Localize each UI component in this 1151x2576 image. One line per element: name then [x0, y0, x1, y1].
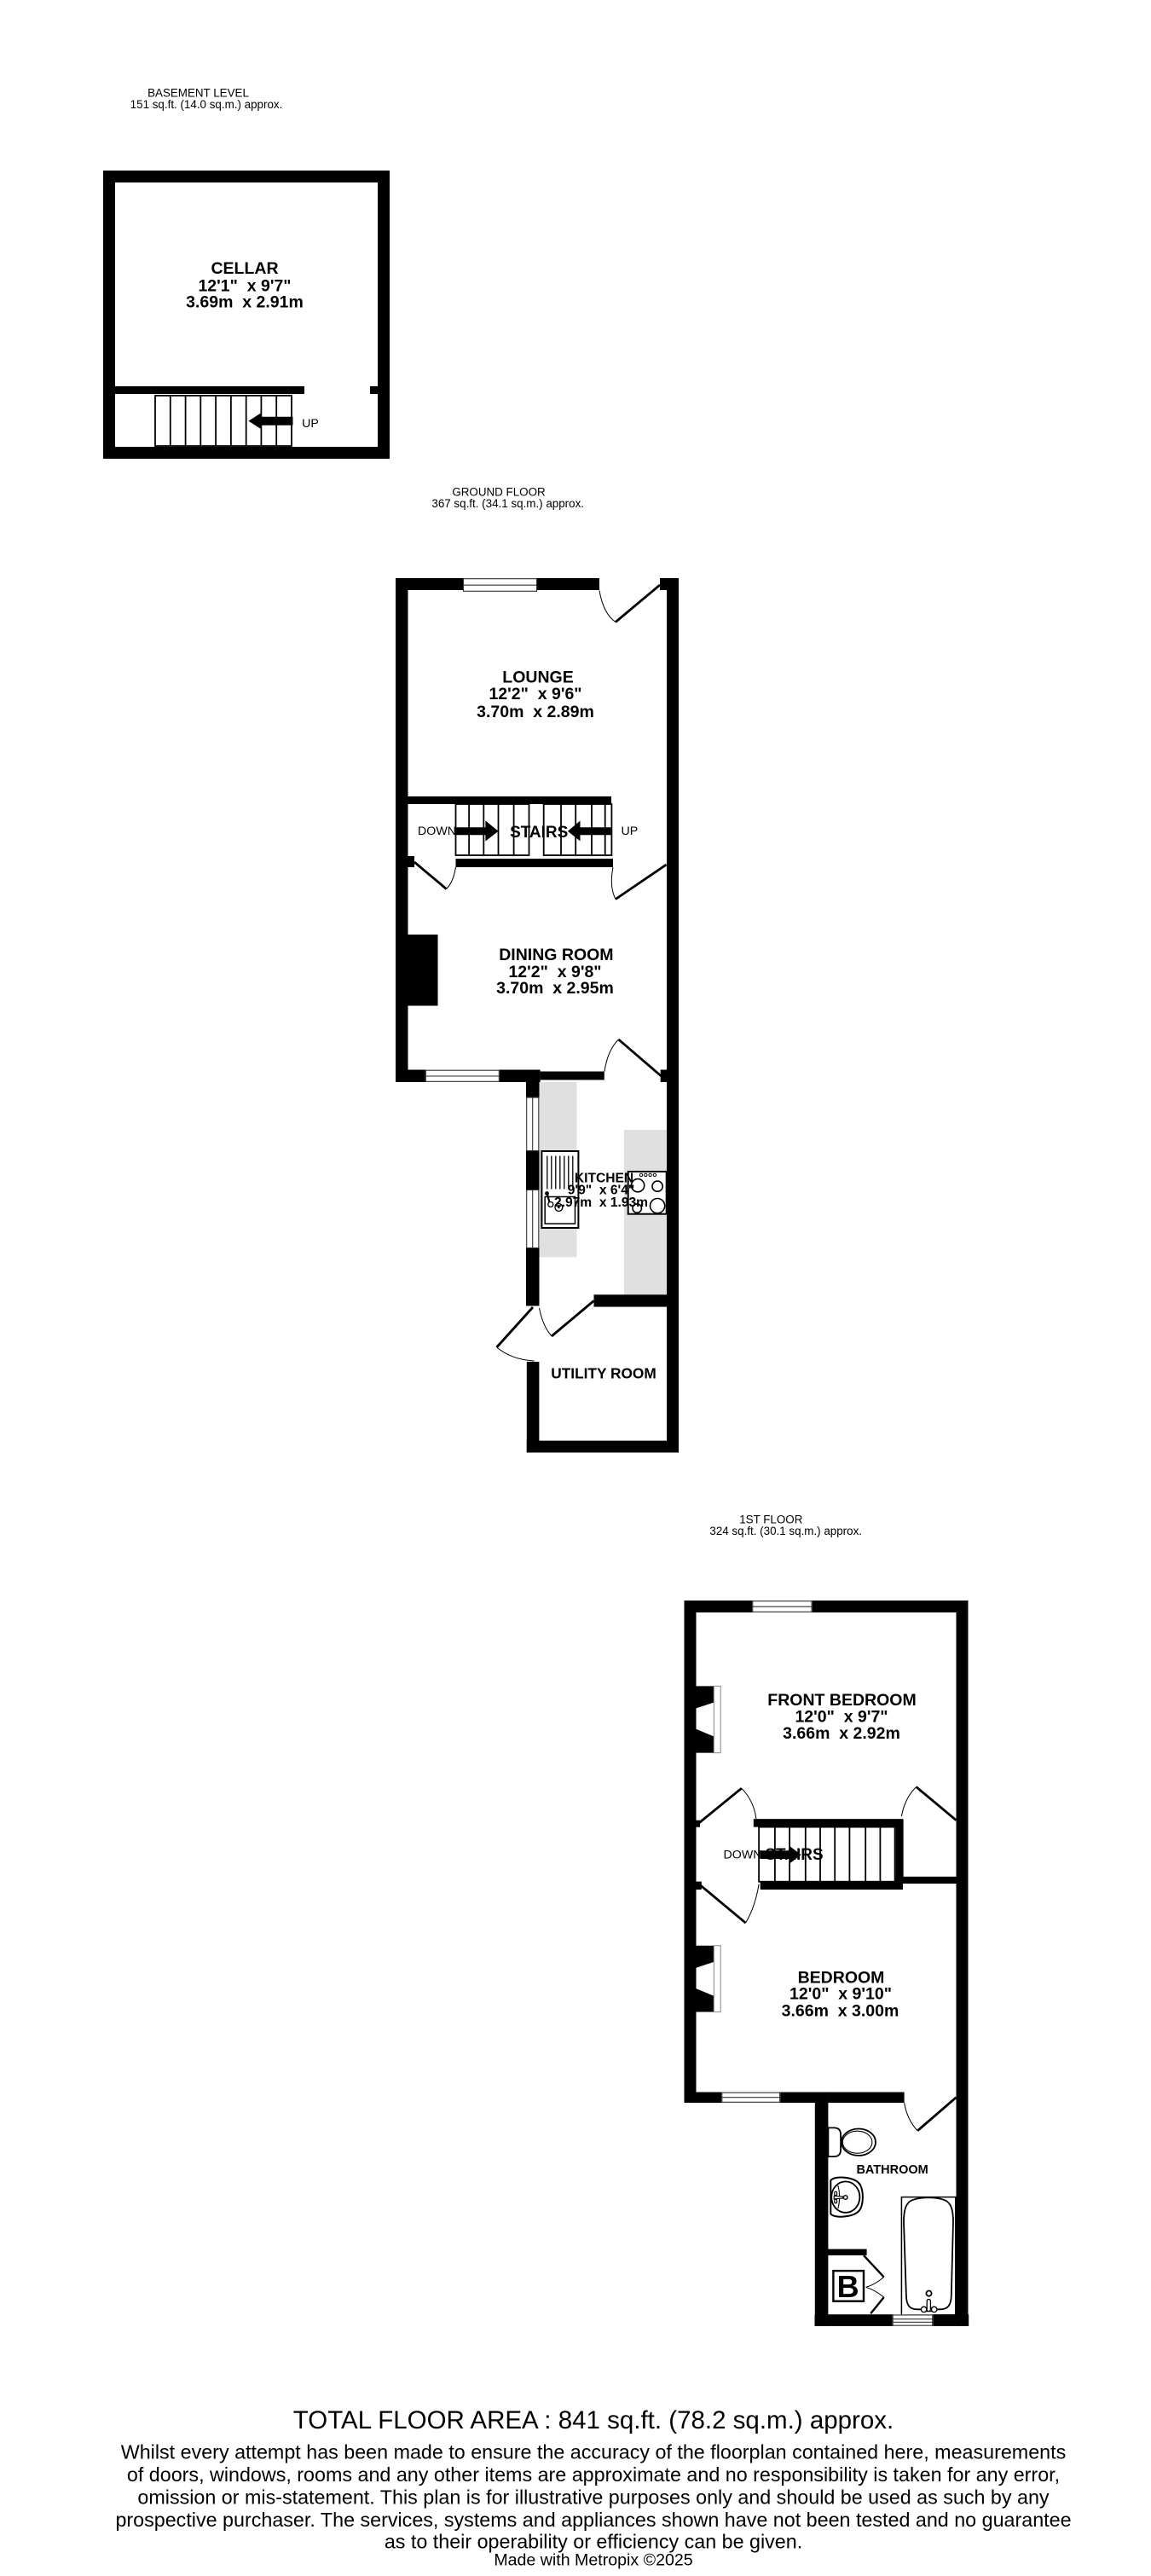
svg-text:UP: UP — [302, 417, 319, 431]
svg-text:12'0" x 9'10": 12'0" x 9'10" — [790, 1984, 892, 2003]
svg-text:324 sq.ft. (30.1 sq.m.) approx: 324 sq.ft. (30.1 sq.m.) approx. — [709, 1525, 862, 1537]
svg-text:3.69m x 2.91m: 3.69m x 2.91m — [186, 293, 304, 312]
svg-text:2.97m x 1.93m: 2.97m x 1.93m — [554, 1195, 648, 1210]
svg-text:DOWN: DOWN — [724, 1849, 762, 1862]
svg-text:3.70m x 2.89m: 3.70m x 2.89m — [477, 703, 594, 721]
svg-text:151 sq.ft. (14.0 sq.m.) approx: 151 sq.ft. (14.0 sq.m.) approx. — [130, 98, 283, 111]
svg-text:UTILITY ROOM: UTILITY ROOM — [551, 1365, 656, 1382]
svg-text:prospective purchaser. The ser: prospective purchaser. The services, sys… — [115, 2509, 1071, 2531]
svg-text:as to their operability or eff: as to their operability or efficiency ca… — [385, 2531, 802, 2553]
svg-text:367 sq.ft. (34.1 sq.m.) approx: 367 sq.ft. (34.1 sq.m.) approx. — [431, 497, 584, 510]
svg-text:TOTAL FLOOR AREA : 841 sq.ft.: TOTAL FLOOR AREA : 841 sq.ft. (78.2 sq.m… — [293, 2406, 894, 2434]
svg-text:Made with Metropix ©2025: Made with Metropix ©2025 — [494, 2551, 692, 2570]
svg-text:UP: UP — [622, 825, 639, 838]
svg-text:B: B — [837, 2269, 859, 2304]
svg-text:BATHROOM: BATHROOM — [856, 2163, 928, 2177]
svg-text:3.66m x 2.92m: 3.66m x 2.92m — [783, 1724, 900, 1743]
svg-text:DOWN: DOWN — [418, 825, 456, 838]
svg-text:12'2" x 9'6": 12'2" x 9'6" — [489, 685, 581, 703]
svg-text:omission or mis-statement. Thi: omission or mis-statement. This plan is … — [137, 2486, 1050, 2509]
svg-text:DINING ROOM: DINING ROOM — [499, 946, 613, 964]
svg-text:Whilst every attempt has been: Whilst every attempt has been made to en… — [121, 2441, 1067, 2463]
svg-text:3.70m x 2.95m: 3.70m x 2.95m — [496, 979, 614, 998]
svg-text:STAIRS: STAIRS — [510, 824, 568, 842]
svg-text:CELLAR: CELLAR — [211, 259, 278, 278]
svg-text:of doors, windows, rooms and a: of doors, windows, rooms and any other i… — [127, 2463, 1060, 2486]
svg-text:3.66m x 3.00m: 3.66m x 3.00m — [782, 2002, 899, 2021]
